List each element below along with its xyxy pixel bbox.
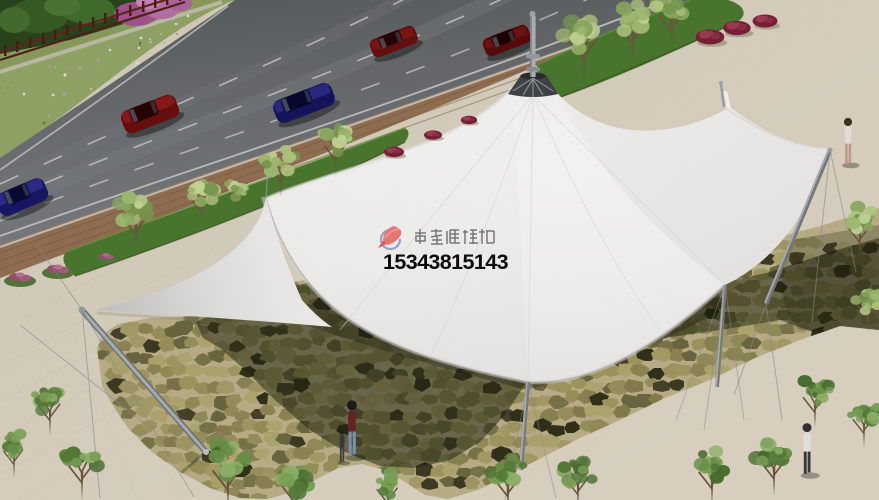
svg-text:15343815143: 15343815143 (383, 250, 509, 274)
